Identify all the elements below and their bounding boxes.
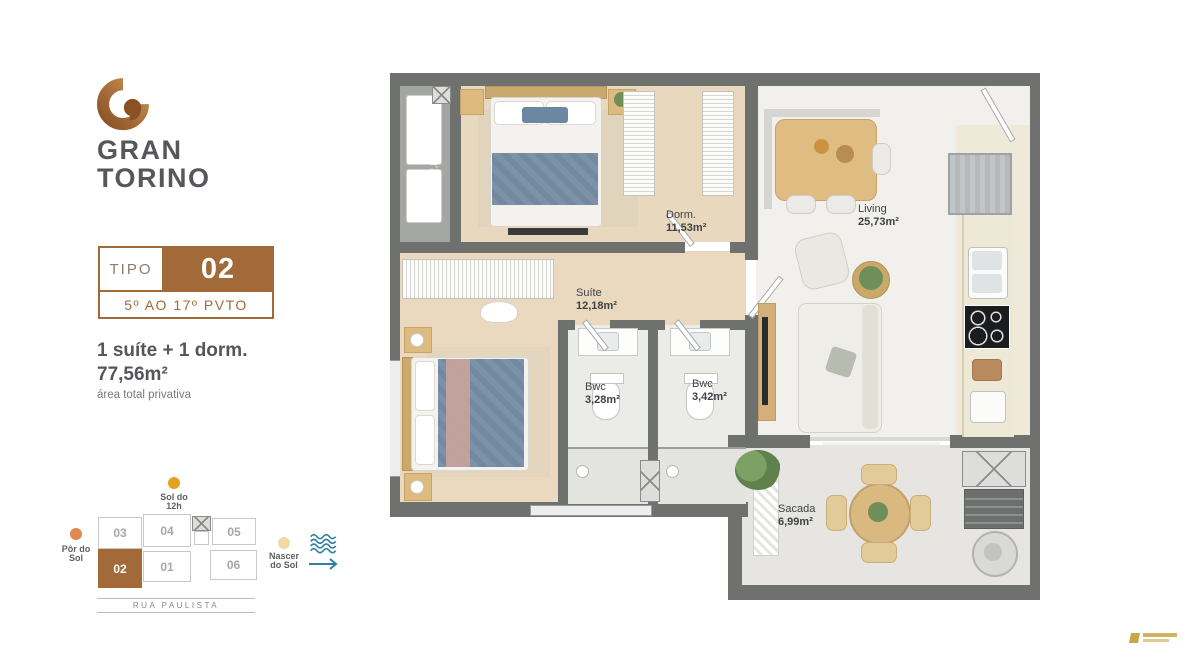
street-label: RUA PAULISTA (97, 601, 255, 610)
plant-icon (735, 450, 781, 490)
sacada-sink-bowl (984, 543, 1002, 561)
fridge (948, 153, 1012, 215)
dining-chair (872, 143, 891, 175)
wall (740, 435, 810, 448)
sliding-door-rail (810, 437, 950, 441)
type-badge-label: TIPO (100, 248, 164, 290)
bwc1-shower (568, 447, 648, 504)
unit-box-04: 04 (143, 514, 191, 547)
unit-box-01: 01 (143, 551, 191, 582)
suite-pillow (415, 361, 435, 411)
dorm-wardrobe (623, 91, 655, 196)
shaft-icon (432, 86, 451, 104)
sacada-chair (861, 542, 897, 563)
noon-sun-label: Sol do 12h (148, 493, 200, 511)
suite-desk-chair (480, 301, 518, 323)
sunset-label: Pôr do Sol (50, 545, 102, 563)
bwc1-vanity (578, 328, 638, 356)
technical-area-label: A.T. - 2,88m² (428, 143, 441, 200)
brand-name-line1: GRAN (97, 136, 211, 164)
dorm-blanket (492, 153, 598, 205)
bwc2-shower (658, 447, 746, 504)
wall (730, 242, 746, 253)
dining-bench (764, 109, 772, 209)
bwc2-label: Bwc 3,42m² (692, 378, 727, 404)
floor-plan-brochure: GRAN TORINO TIPO 02 5º AO 17º PVTO 1 suí… (0, 0, 1191, 669)
unit-box-05: 05 (212, 518, 256, 545)
type-badge: TIPO 02 5º AO 17º PVTO (98, 246, 274, 319)
dorm-wardrobe (702, 91, 734, 196)
gran-torino-logo-icon (97, 78, 149, 132)
wall (390, 242, 685, 253)
noon-sun-icon (168, 477, 180, 489)
unit-summary: 1 suíte + 1 dorm. 77,56m² área total pri… (97, 339, 247, 401)
street-rule-top (97, 598, 255, 599)
sliding-door-glass (822, 442, 940, 445)
bwc2-vanity (670, 328, 730, 356)
cooktop (964, 305, 1010, 349)
type-badge-number: 02 (164, 248, 272, 290)
wall (745, 315, 758, 437)
table-decor-icon (836, 145, 854, 163)
suite-wardrobe (402, 259, 554, 299)
plumbing-shaft-icon (640, 460, 660, 502)
sacada-chair (826, 495, 847, 531)
unit-box-03: 03 (98, 517, 142, 549)
waves-arrow-east-icon (306, 532, 342, 578)
dining-table (775, 119, 877, 201)
dining-chair (786, 195, 816, 214)
street-rule-bottom (97, 612, 255, 613)
bedroom-window (530, 505, 652, 516)
wall (745, 73, 758, 260)
bwc1-label: Bwc 3,28m² (585, 381, 620, 407)
living-label: Living 25,73m² (858, 203, 899, 229)
wall (558, 320, 568, 502)
lamp-icon (410, 480, 424, 494)
dorm-bench (508, 228, 588, 235)
dorm-accent-pillow (522, 107, 568, 123)
table-decor-icon (814, 139, 829, 154)
tv-icon (762, 317, 768, 405)
sunrise-icon (278, 537, 290, 549)
suite-label: Suíte 12,18m² (576, 287, 617, 313)
brand-name: GRAN TORINO (97, 136, 211, 192)
dining-bench (764, 109, 880, 117)
gold-builder-logo-icon (1130, 631, 1180, 645)
apartment-floor-plan: A.T. - 2,88m² Dorm. 11,53m² (390, 65, 1040, 600)
summary-area: 77,56m² (97, 363, 247, 387)
summary-rooms: 1 suíte + 1 dorm. (97, 339, 247, 363)
dorm-nightstand (460, 89, 484, 115)
sunrise-label: Nascer do Sol (258, 552, 310, 570)
stair-core-icon (194, 531, 209, 545)
bbq-cabinet-icon (962, 451, 1026, 487)
prep-sink (970, 391, 1006, 423)
sacada-chair (910, 495, 931, 531)
sunset-icon (70, 528, 82, 540)
dorm-label: Dorm. 11,53m² (666, 209, 706, 235)
sink-bowl (972, 251, 1002, 270)
brand-name-line2: TORINO (97, 164, 211, 192)
bbq-grill (964, 489, 1024, 529)
sofa-backrest (862, 305, 878, 429)
wall (1030, 73, 1040, 600)
sink-bowl (972, 274, 1002, 293)
orientation-diagram: Sol do 12h Pôr do Sol Nascer do Sol 03 0… (40, 460, 360, 630)
elevator-core-icon (192, 516, 211, 531)
sacada-chair (861, 464, 897, 485)
plant-icon (868, 502, 888, 522)
summary-note: área total privativa (97, 389, 247, 401)
suite-window (390, 360, 400, 477)
wall (390, 73, 1040, 86)
unit-box-06: 06 (210, 550, 257, 580)
plant-icon (859, 266, 883, 290)
suite-throw (446, 359, 470, 467)
sacada-label: Sacada 6,99m² (778, 503, 815, 529)
type-badge-floors: 5º AO 17º PVTO (100, 290, 272, 317)
lamp-icon (410, 333, 424, 347)
wall (728, 585, 1040, 600)
unit-box-02-highlighted: 02 (98, 549, 142, 588)
kitchen-appliance (972, 359, 1002, 381)
dining-chair (826, 195, 856, 214)
suite-pillow (415, 415, 435, 465)
